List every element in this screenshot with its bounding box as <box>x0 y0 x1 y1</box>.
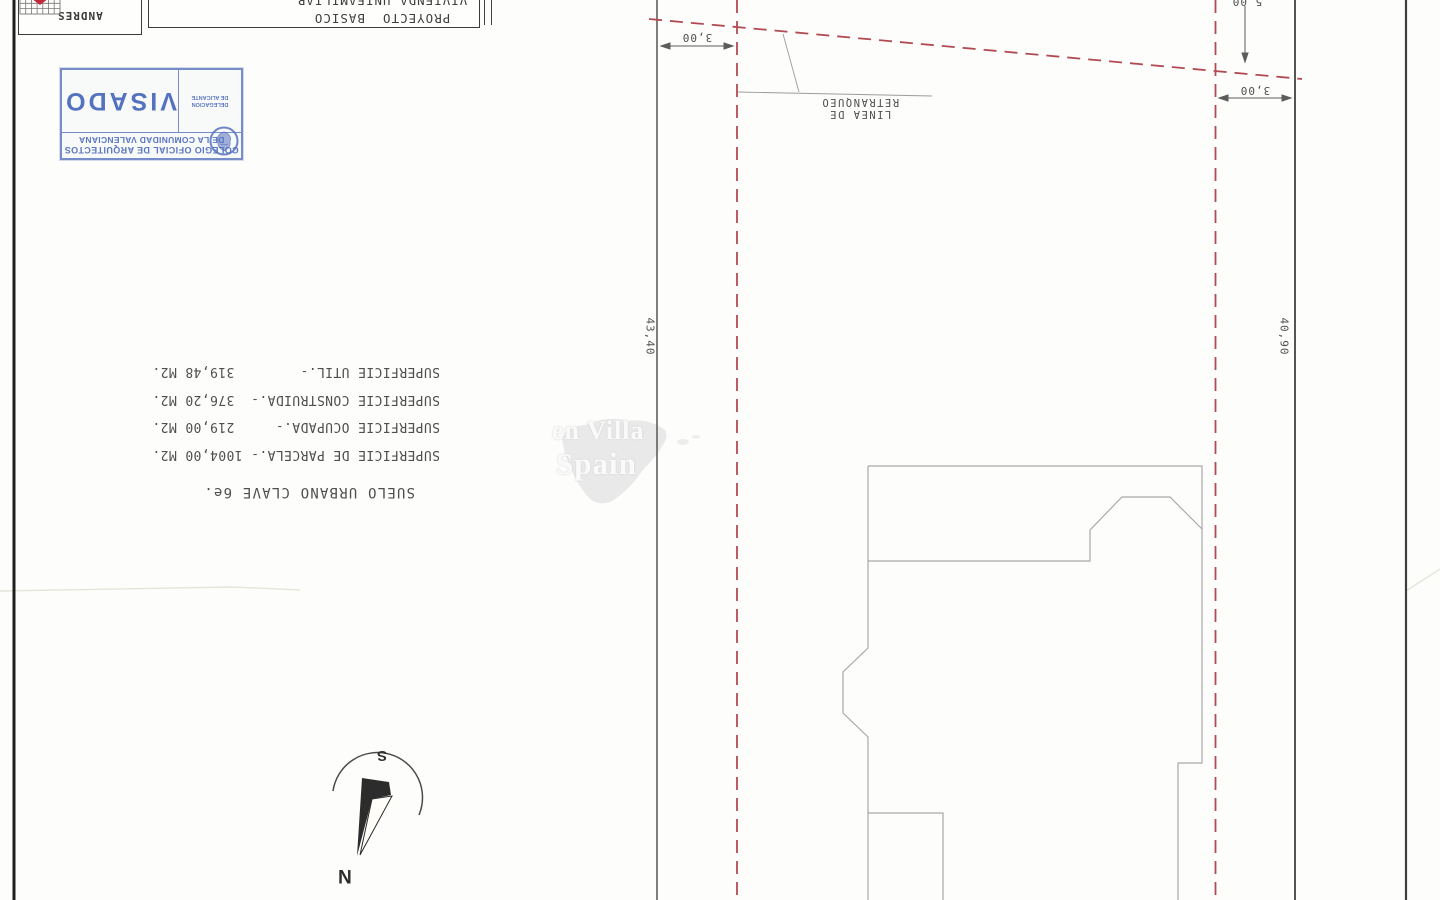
building-porch <box>868 813 943 900</box>
building-outline <box>843 466 1202 900</box>
arrowhead <box>661 43 670 49</box>
setback-lines <box>649 0 1302 900</box>
dimension-front-left: 3,00 <box>672 31 722 44</box>
building-inner-wing <box>868 497 1202 561</box>
surface-summary: SUELO URBANO CLAVE 6e. SUPERFICIE DE PAR… <box>100 352 440 500</box>
fold-lines <box>0 569 1440 591</box>
setback-line-label: LINEA DE RETRANQUEO <box>788 96 932 120</box>
arrowhead <box>1242 53 1248 62</box>
compass-north-label: N <box>338 864 352 886</box>
zoning-label: SUELO URBANO CLAVE 6e. <box>100 484 415 500</box>
dimension-length-left: 43,40 <box>644 315 657 359</box>
leader-lines <box>738 34 932 96</box>
dimension-lines <box>661 6 1291 101</box>
arrowhead <box>1219 95 1228 101</box>
scanned-site-plan-sheet: { "colors": { "setback_red": "#b24a54", … <box>0 0 1440 900</box>
setback-line-front-diagonal <box>649 19 1302 79</box>
compass-south-label: S <box>377 747 387 764</box>
north-compass <box>333 753 423 856</box>
dimension-length-right: 40,90 <box>1278 315 1291 359</box>
arrowhead <box>1282 95 1291 101</box>
surface-line-parcela: SUPERFICIE DE PARCELA.- 1004,00 M2. <box>100 441 440 469</box>
arrowhead <box>724 43 733 49</box>
surface-line-construida: SUPERFICIE CONSTRUIDA.- 376,20 M2. <box>100 386 440 414</box>
surface-line-ocupada: SUPERFICIE OCUPADA.- 219,00 M2. <box>100 413 440 441</box>
surface-line-util: SUPERFICIE UTIL.- 319,48 M2. <box>100 358 440 386</box>
dimension-top-right: 5,00 <box>1222 0 1272 8</box>
dimension-side-right: 3,00 <box>1230 84 1280 97</box>
building-left-edge <box>843 466 868 900</box>
building-main-outline <box>868 466 1202 900</box>
